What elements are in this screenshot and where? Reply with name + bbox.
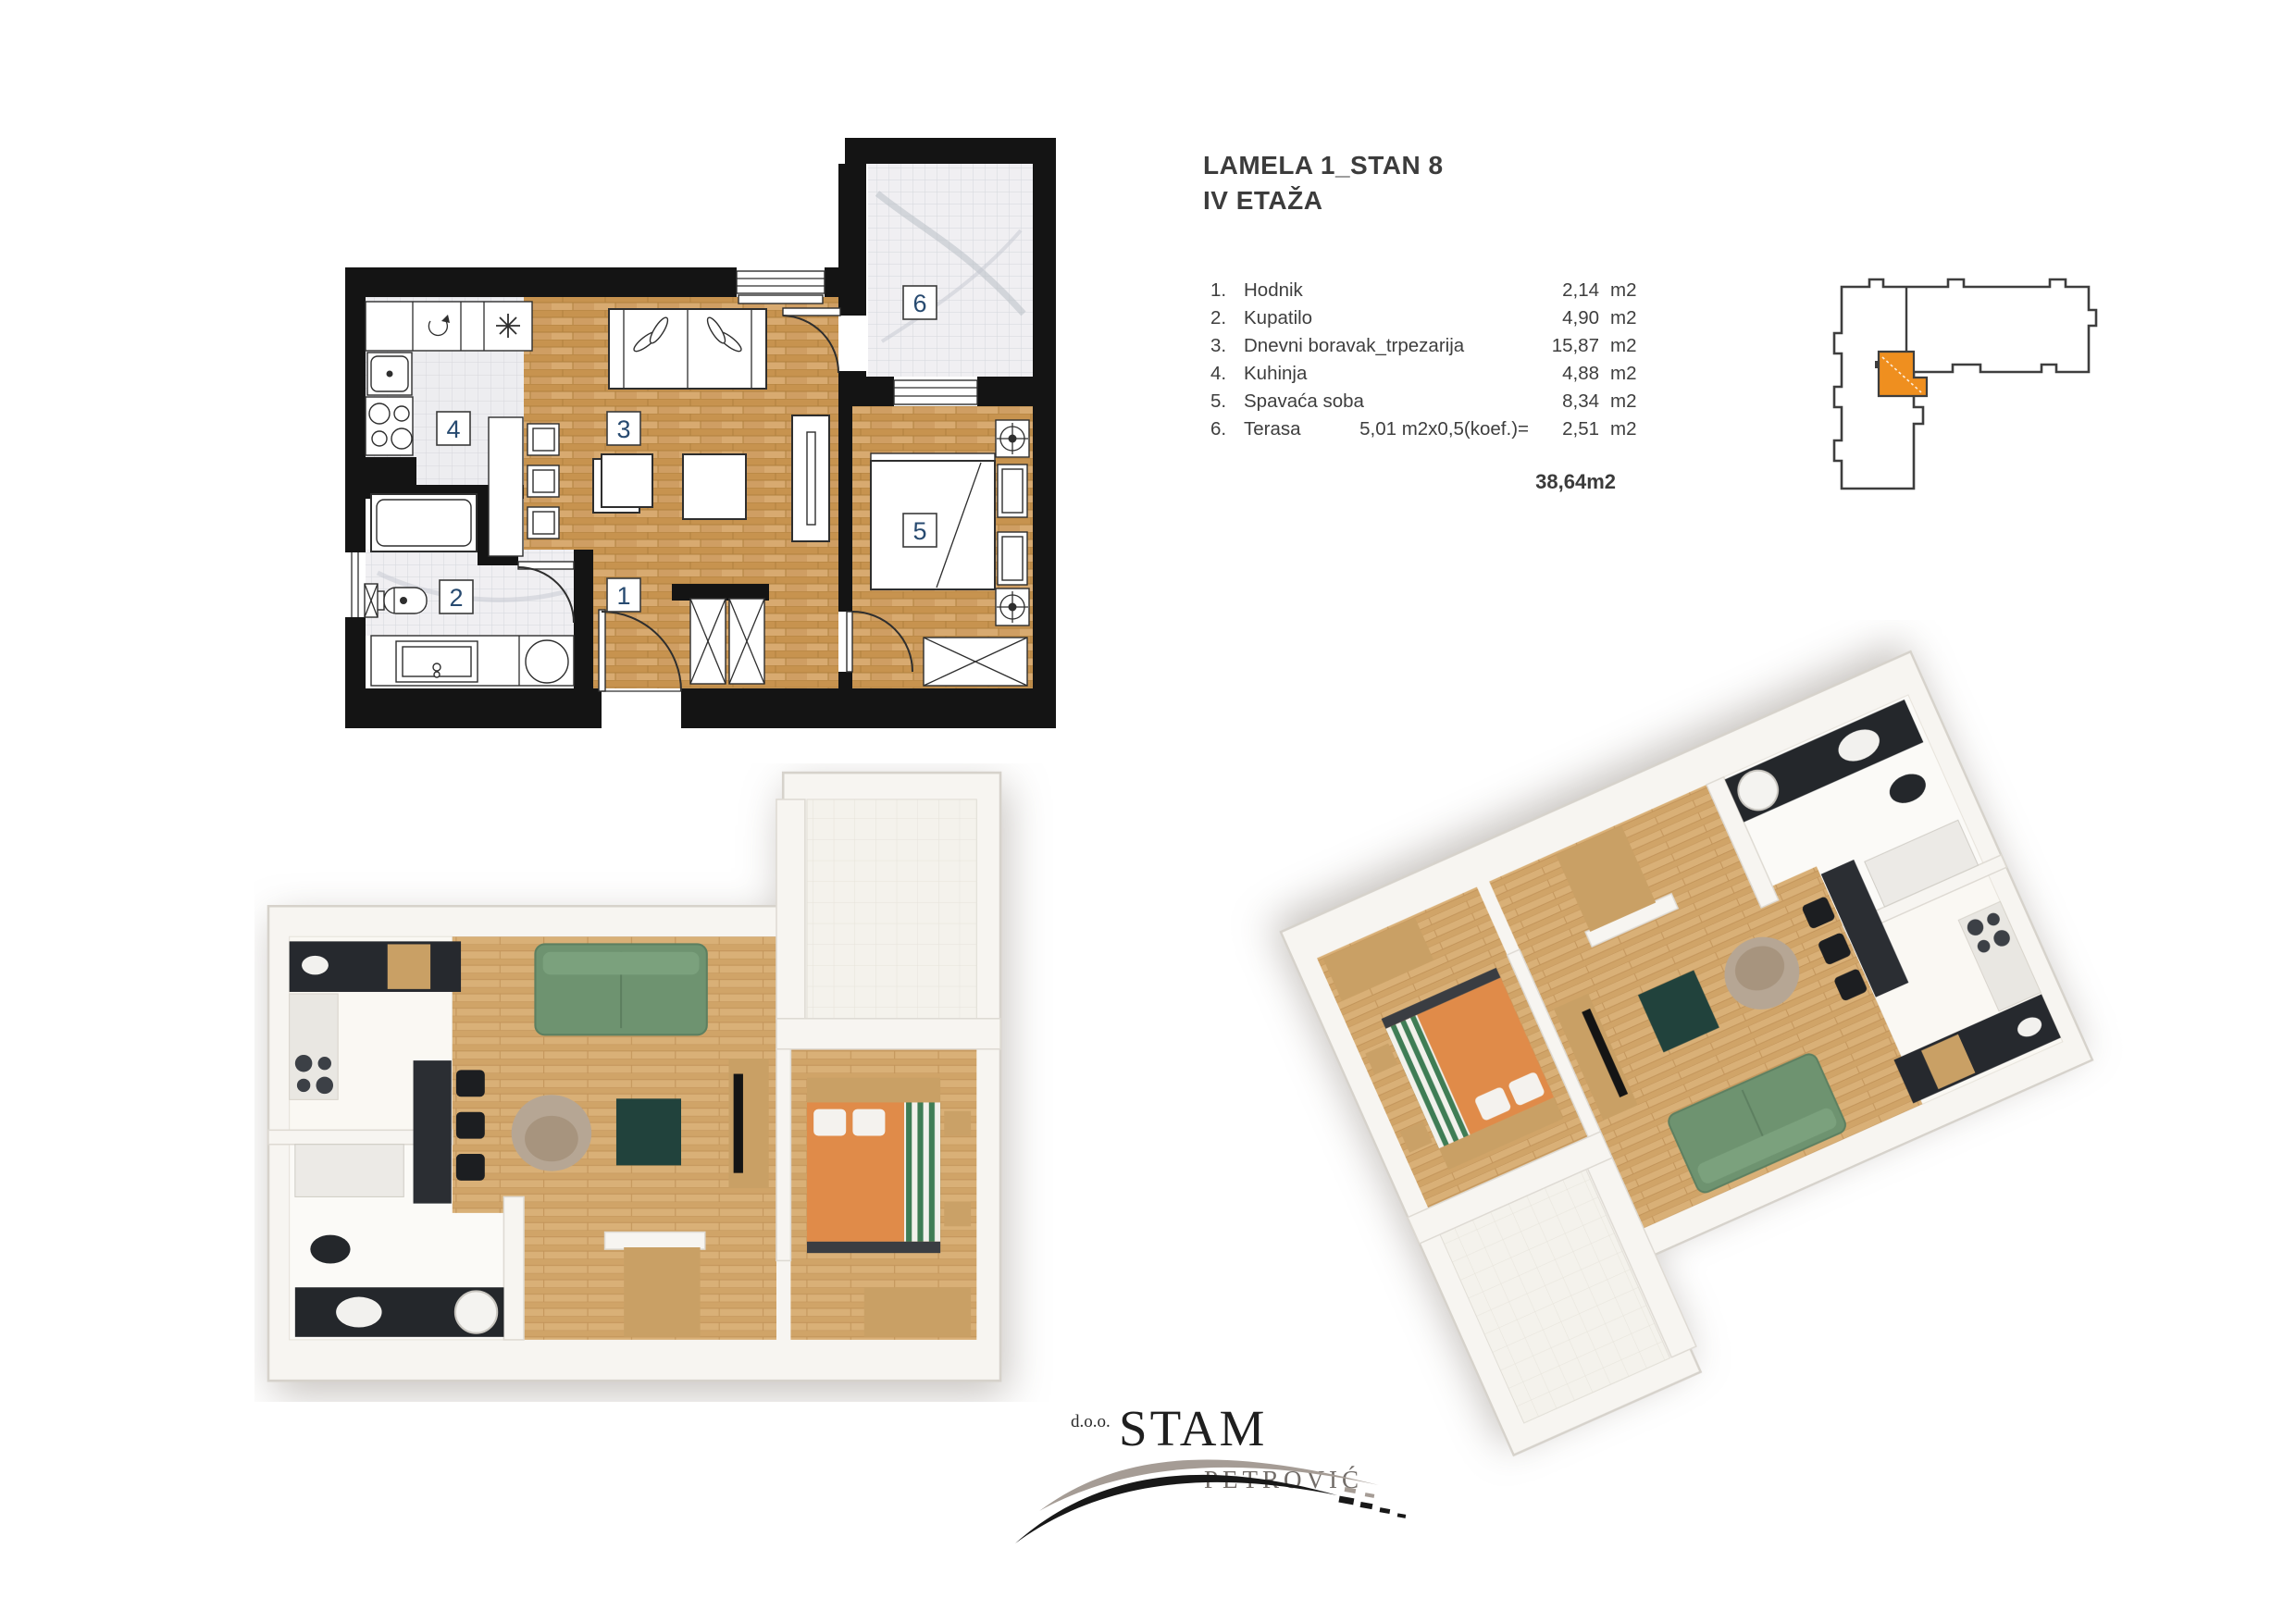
row-number: 6. xyxy=(1210,415,1244,443)
building-key-plan xyxy=(1812,266,2122,502)
bathtub xyxy=(371,494,477,551)
room-area: 4,88 xyxy=(1538,360,1599,388)
svg-text:4: 4 xyxy=(446,415,460,443)
area-unit: m2 xyxy=(1599,415,1653,443)
row-number: 4. xyxy=(1210,360,1244,388)
unit-entry-mark xyxy=(1875,361,1880,368)
floor-plan-2d: 1 2 3 4 5 6 xyxy=(342,134,1064,736)
logo-name: STAM xyxy=(1119,1400,1267,1456)
room-name: Hodnik xyxy=(1244,277,1529,304)
table-row: 3. Dnevni boravak_trpezarija 15,87 m2 xyxy=(1210,332,1653,360)
title-line-1: LAMELA 1_STAN 8 xyxy=(1203,148,1444,183)
svg-text:6: 6 xyxy=(912,290,926,317)
page-title: LAMELA 1_STAN 8 IV ETAŽA xyxy=(1203,148,1444,218)
row-number: 5. xyxy=(1210,388,1244,415)
room-label-bathroom: 2 xyxy=(440,580,473,613)
kitchen-cabinets xyxy=(366,302,532,351)
terrace-floor xyxy=(868,164,1033,377)
total-area: 38,64m2 xyxy=(1210,470,1653,494)
dining-set xyxy=(593,454,652,513)
svg-text:3: 3 xyxy=(616,415,630,443)
area-unit: m2 xyxy=(1599,388,1653,415)
room-name: Spavaća soba xyxy=(1244,388,1529,415)
room-area: 15,87 xyxy=(1538,332,1599,360)
side-table xyxy=(683,454,746,519)
logo-prefix: d.o.o. xyxy=(1071,1412,1111,1431)
window-bedroom xyxy=(894,380,977,404)
svg-text:5: 5 xyxy=(912,517,926,545)
bathroom-window-box-icon xyxy=(365,584,378,617)
room-label-hallway: 1 xyxy=(607,578,640,612)
title-line-2: IV ETAŽA xyxy=(1203,183,1444,218)
room-name: Dnevni boravak_trpezarija xyxy=(1244,332,1529,360)
row-number: 1. xyxy=(1210,277,1244,304)
kitchen-sink xyxy=(367,353,412,395)
svg-text:2: 2 xyxy=(449,584,463,612)
room-label-kitchen: 4 xyxy=(437,412,470,445)
bedroom-wardrobe xyxy=(924,638,1027,686)
ceiling-light-icon xyxy=(996,420,1029,457)
window-bathroom xyxy=(346,552,365,617)
area-unit: m2 xyxy=(1599,360,1653,388)
render-3d-top-view xyxy=(254,763,1101,1402)
logo-swoosh-dashes xyxy=(1338,1487,1406,1518)
window-living xyxy=(737,271,825,304)
table-row: 2. Kupatilo 4,90 m2 xyxy=(1210,304,1653,332)
table-row: 4. Kuhinja 4,88 m2 xyxy=(1210,360,1653,388)
company-logo: d.o.o. STAM PETROVIĆ xyxy=(1013,1379,1421,1555)
table-row: 1. Hodnik 2,14 m2 xyxy=(1210,277,1653,304)
bar-counter xyxy=(489,417,523,556)
svg-text:1: 1 xyxy=(616,582,630,610)
room-label-living: 3 xyxy=(607,412,640,445)
room-area-table: 1. Hodnik 2,14 m2 2. Kupatilo 4,90 m2 3.… xyxy=(1210,277,1653,443)
row-number: 2. xyxy=(1210,304,1244,332)
room-area: 2,51 xyxy=(1538,415,1599,443)
tv-cabinet xyxy=(792,415,829,541)
area-unit: m2 xyxy=(1599,332,1653,360)
room-area: 8,34 xyxy=(1538,388,1599,415)
room-label-bedroom: 5 xyxy=(903,514,937,547)
area-unit: m2 xyxy=(1599,304,1653,332)
room-name: Terasa xyxy=(1244,415,1359,443)
ceiling-light-icon xyxy=(996,588,1029,626)
row-note: 5,01 m2x0,5(koef.)= xyxy=(1359,415,1529,443)
table-row: 5. Spavaća soba 8,34 m2 xyxy=(1210,388,1653,415)
room-name: Kuhinja xyxy=(1244,360,1529,388)
bar-stools xyxy=(527,424,559,539)
render-3d-iso-view xyxy=(1231,620,2240,1508)
table-row: 6. Terasa 5,01 m2x0,5(koef.)= 2,51 m2 xyxy=(1210,415,1653,443)
stove xyxy=(366,397,413,455)
room-area: 4,90 xyxy=(1538,304,1599,332)
sofa-bed xyxy=(609,309,766,389)
row-number: 3. xyxy=(1210,332,1244,360)
room-area: 2,14 xyxy=(1538,277,1599,304)
building-outline xyxy=(1834,279,2096,489)
washing-machine xyxy=(526,640,568,683)
area-unit: m2 xyxy=(1599,277,1653,304)
room-name: Kupatilo xyxy=(1244,304,1529,332)
logo-swoosh-black xyxy=(1015,1475,1337,1543)
room-label-terrace: 6 xyxy=(903,286,937,319)
